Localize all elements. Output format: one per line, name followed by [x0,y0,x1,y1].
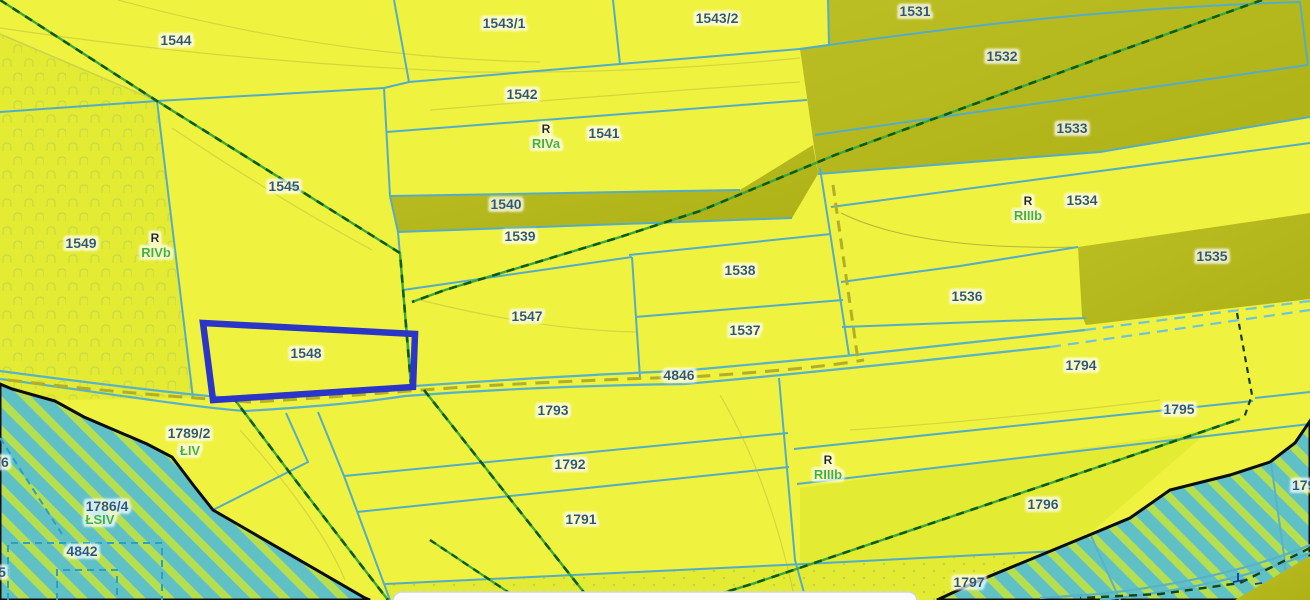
svg-text:1794: 1794 [1065,357,1096,373]
svg-text:1549: 1549 [65,235,96,251]
svg-text:RIVa: RIVa [532,136,561,151]
svg-text:1537: 1537 [729,322,760,338]
svg-text:1538: 1538 [724,262,755,278]
svg-text:1542: 1542 [506,86,537,102]
svg-text:RIIIb: RIIIb [1014,208,1042,223]
svg-text:179: 179 [1292,477,1310,493]
svg-text:1796: 1796 [1027,496,1058,512]
svg-text:1543/1: 1543/1 [483,15,526,31]
svg-text:1534: 1534 [1066,192,1097,208]
svg-text:R: R [151,231,160,245]
svg-text:ŁSIV: ŁSIV [86,512,115,527]
svg-text:1539: 1539 [504,228,535,244]
svg-text:4846: 4846 [663,367,694,383]
svg-text:R: R [542,122,551,136]
svg-text:1789/2: 1789/2 [168,425,211,441]
svg-text:1793: 1793 [537,402,568,418]
svg-text:5: 5 [0,564,6,580]
svg-text:1531: 1531 [899,3,930,19]
svg-text:1797: 1797 [953,574,984,590]
svg-text:R: R [1024,194,1033,208]
svg-text:1795: 1795 [1163,401,1194,417]
svg-text:/6: /6 [0,454,9,470]
svg-text:1533: 1533 [1056,120,1087,136]
svg-text:R: R [824,453,833,467]
svg-text:1792: 1792 [554,456,585,472]
svg-text:RIVb: RIVb [141,245,171,260]
svg-text:ŁIV: ŁIV [180,443,201,458]
svg-text:1545: 1545 [268,178,299,194]
svg-text:1547: 1547 [511,308,542,324]
svg-text:1548: 1548 [290,345,321,361]
svg-text:1535: 1535 [1196,248,1227,264]
svg-text:1540: 1540 [490,196,521,212]
svg-text:1532: 1532 [986,48,1017,64]
svg-text:1544: 1544 [160,32,191,48]
svg-text:1536: 1536 [951,288,982,304]
svg-text:1543/2: 1543/2 [696,10,739,26]
svg-text:4842: 4842 [66,543,97,559]
svg-text:RIIIb: RIIIb [814,467,842,482]
svg-text:1541: 1541 [588,125,619,141]
svg-text:1791: 1791 [565,511,596,527]
